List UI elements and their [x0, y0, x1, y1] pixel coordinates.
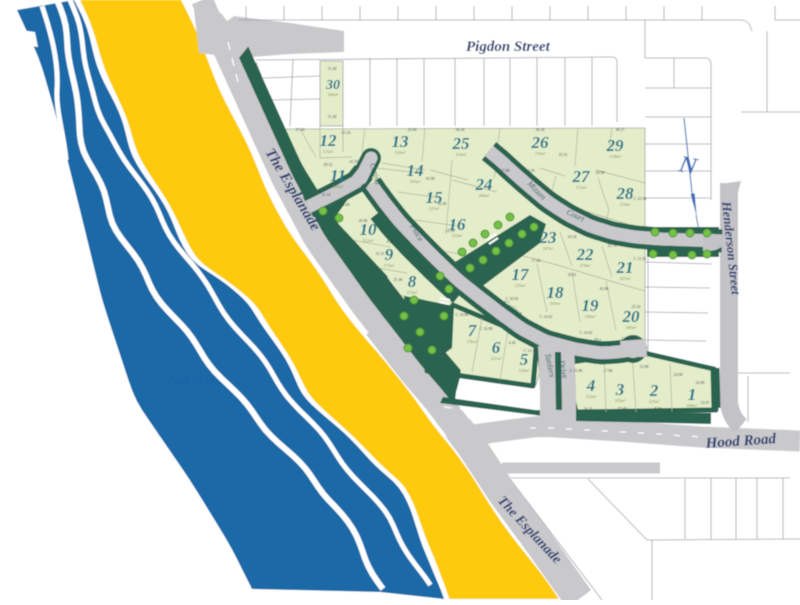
svg-text:C 12.98: C 12.98: [524, 348, 537, 353]
svg-text:27: 27: [572, 167, 592, 186]
svg-text:C 34.82: C 34.82: [622, 336, 635, 341]
svg-text:42.86: 42.86: [600, 286, 609, 291]
svg-text:640m²: 640m²: [479, 193, 490, 198]
svg-text:28: 28: [616, 184, 635, 203]
svg-text:24.34: 24.34: [568, 234, 577, 239]
svg-text:32.96: 32.96: [438, 201, 447, 206]
svg-text:21.21: 21.21: [466, 256, 475, 261]
svg-text:730m²: 730m²: [535, 151, 546, 156]
svg-text:29.98: 29.98: [596, 170, 605, 175]
svg-text:8: 8: [408, 272, 417, 291]
svg-text:3: 3: [615, 380, 625, 399]
svg-text:579m²: 579m²: [620, 202, 631, 207]
svg-text:25: 25: [452, 134, 471, 153]
svg-text:21: 21: [616, 258, 634, 277]
svg-text:11: 11: [330, 166, 346, 185]
svg-text:Pigdon Street: Pigdon Street: [466, 39, 551, 55]
svg-text:572m²: 572m²: [576, 185, 587, 190]
svg-text:6: 6: [492, 338, 501, 357]
svg-text:549m²: 549m²: [328, 92, 339, 97]
svg-text:26: 26: [531, 133, 550, 152]
svg-text:540m²: 540m²: [585, 314, 596, 319]
svg-text:32.31: 32.31: [376, 251, 385, 256]
svg-text:1: 1: [688, 385, 697, 404]
svg-text:27.40: 27.40: [618, 406, 627, 411]
svg-text:41.33: 41.33: [342, 130, 351, 135]
svg-text:33.97: 33.97: [701, 400, 710, 405]
svg-text:37.24: 37.24: [296, 127, 305, 132]
svg-text:547m²: 547m²: [543, 246, 554, 251]
svg-text:536m²: 536m²: [467, 339, 478, 344]
svg-text:24.29: 24.29: [526, 168, 535, 173]
svg-text:C 16.98: C 16.98: [480, 326, 493, 331]
svg-text:512m²: 512m²: [363, 238, 374, 243]
svg-text:13: 13: [392, 132, 410, 151]
svg-text:2: 2: [649, 381, 659, 400]
svg-text:515m²: 515m²: [323, 149, 334, 154]
svg-text:36.39: 36.39: [456, 127, 465, 132]
svg-text:23: 23: [539, 228, 558, 247]
svg-text:12.36: 12.36: [446, 228, 455, 233]
svg-text:22: 22: [576, 245, 595, 264]
svg-text:17.86: 17.86: [604, 368, 613, 373]
svg-text:24.98: 24.98: [696, 380, 705, 385]
svg-text:4.36: 4.36: [509, 340, 516, 345]
svg-text:12.98: 12.98: [668, 408, 677, 413]
svg-text:570m²: 570m²: [407, 290, 418, 295]
svg-text:1138m²: 1138m²: [609, 154, 622, 159]
svg-text:15.40: 15.40: [328, 114, 337, 119]
svg-text:35.98: 35.98: [426, 176, 435, 181]
svg-text:521m²: 521m²: [491, 356, 502, 361]
svg-text:C 26.82: C 26.82: [506, 296, 519, 301]
svg-text:18: 18: [547, 283, 565, 302]
svg-text:14: 14: [407, 161, 424, 180]
svg-text:24: 24: [475, 175, 493, 194]
svg-text:4: 4: [586, 376, 596, 395]
svg-text:38.27: 38.27: [616, 127, 625, 132]
svg-text:19: 19: [582, 296, 600, 315]
svg-text:C 24.82: C 24.82: [580, 330, 593, 335]
svg-text:557m²: 557m²: [620, 276, 631, 281]
svg-text:505m²: 505m²: [615, 398, 626, 403]
svg-text:17: 17: [512, 265, 531, 284]
svg-text:28.32: 28.32: [324, 162, 333, 167]
svg-text:31.14: 31.14: [322, 192, 331, 197]
svg-text:C 21.65: C 21.65: [634, 256, 647, 261]
svg-text:4.36: 4.36: [387, 239, 394, 244]
svg-text:649m²: 649m²: [687, 403, 698, 408]
svg-text:25.49: 25.49: [341, 202, 350, 207]
svg-text:12.98: 12.98: [640, 364, 649, 369]
svg-text:9: 9: [385, 245, 394, 264]
svg-text:525m²: 525m²: [649, 399, 660, 404]
svg-text:12: 12: [320, 131, 338, 150]
svg-text:C 15.86: C 15.86: [570, 368, 583, 373]
svg-text:41.95: 41.95: [350, 159, 359, 164]
svg-text:575m²: 575m²: [384, 263, 395, 268]
svg-text:522m²: 522m²: [452, 233, 463, 238]
svg-text:29: 29: [606, 136, 625, 155]
svg-text:20.96: 20.96: [359, 218, 368, 223]
svg-text:579m²: 579m²: [580, 263, 591, 268]
svg-text:505m²: 505m²: [410, 179, 421, 184]
svg-text:C 19.86: C 19.86: [456, 312, 469, 317]
svg-text:569m²: 569m²: [550, 301, 561, 306]
svg-text:520m²: 520m²: [395, 150, 406, 155]
svg-text:25.06: 25.06: [408, 127, 417, 132]
svg-text:25.76: 25.76: [608, 243, 617, 248]
svg-text:525m²: 525m²: [515, 283, 526, 288]
svg-text:520m²: 520m²: [519, 368, 530, 373]
svg-text:521m²: 521m²: [429, 206, 440, 211]
svg-text:30: 30: [325, 78, 340, 93]
svg-text:24.98: 24.98: [674, 372, 683, 377]
svg-text:27.98: 27.98: [501, 168, 510, 173]
svg-text:20: 20: [622, 307, 641, 326]
svg-text:614m²: 614m²: [456, 152, 467, 157]
svg-text:17.06: 17.06: [532, 258, 541, 263]
svg-text:8.36: 8.36: [655, 406, 662, 411]
svg-text:15.40: 15.40: [328, 66, 337, 71]
svg-text:544m²: 544m²: [333, 184, 344, 189]
svg-text:C 24.82: C 24.82: [540, 314, 553, 319]
svg-text:32.61: 32.61: [568, 272, 577, 277]
svg-text:25.46: 25.46: [394, 277, 403, 282]
svg-text:C 32.98: C 32.98: [634, 196, 647, 201]
svg-text:25.32: 25.32: [632, 304, 641, 309]
svg-text:545m²: 545m²: [626, 325, 637, 330]
svg-text:25.31: 25.31: [559, 152, 568, 157]
svg-text:515m²: 515m²: [586, 394, 597, 399]
svg-text:36.39: 36.39: [536, 127, 545, 132]
svg-text:16.11: 16.11: [584, 406, 593, 411]
